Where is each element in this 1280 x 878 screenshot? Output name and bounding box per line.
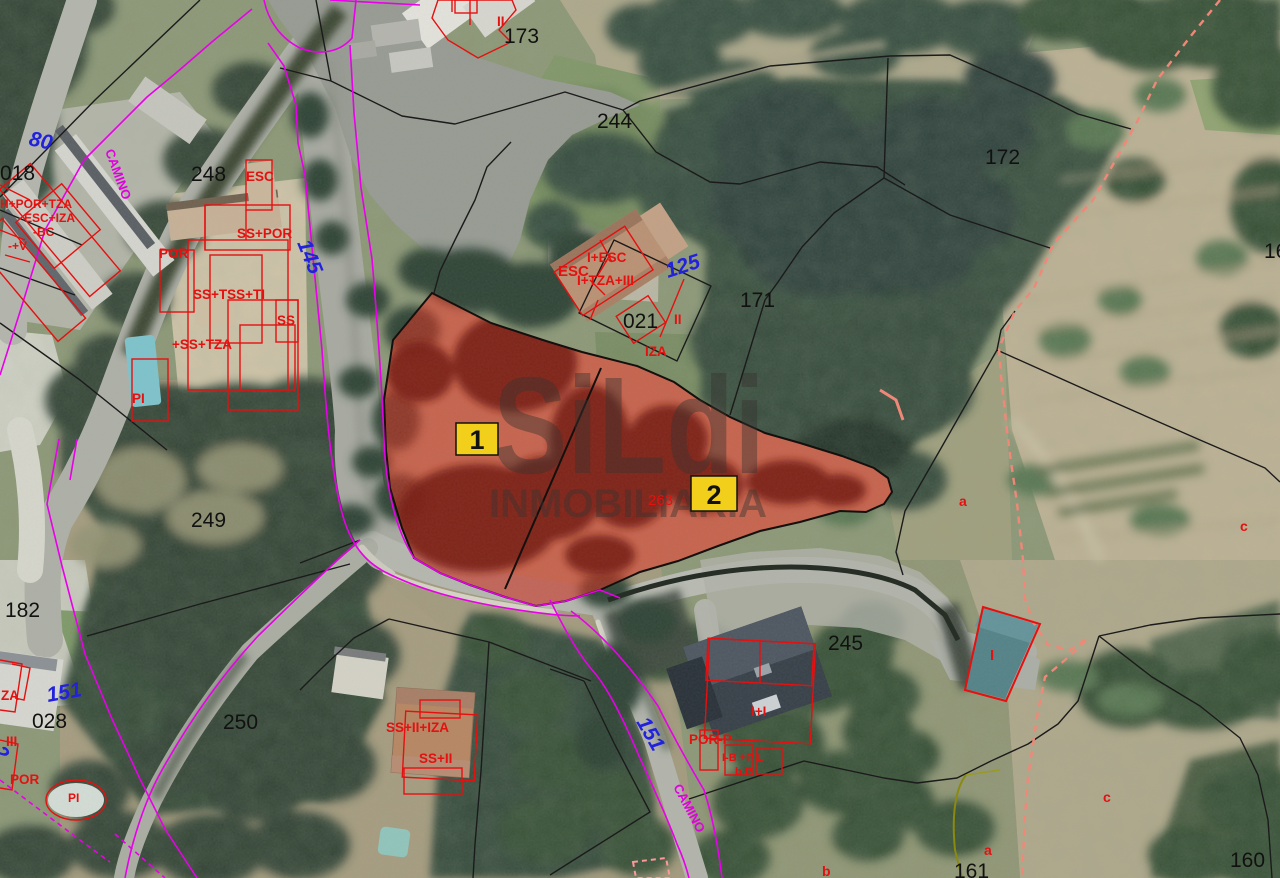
svg-text:1: 1 [469,425,484,455]
svg-text:245: 245 [828,632,863,655]
svg-text:SS+TSS+TI: SS+TSS+TI [193,287,265,302]
svg-text:161: 161 [954,860,989,878]
svg-text:173: 173 [504,25,539,48]
svg-text:182: 182 [5,599,40,622]
svg-text:b: b [822,863,831,878]
svg-text:I: I [990,647,994,664]
svg-text:248: 248 [191,163,226,186]
svg-text:16: 16 [1264,240,1280,263]
svg-text:249: 249 [191,509,226,532]
svg-text:244: 244 [597,110,632,133]
svg-text:SS+II: SS+II [419,751,452,766]
svg-text:a: a [984,842,992,858]
svg-text:SS: SS [277,313,295,328]
svg-text:c: c [1103,789,1111,805]
svg-text:171: 171 [740,289,775,312]
svg-text:I+TZA+III: I+TZA+III [577,273,634,288]
svg-text:263: 263 [648,492,673,509]
svg-text:160: 160 [1230,849,1265,872]
svg-text:250: 250 [223,711,258,734]
svg-text:c: c [1240,518,1248,534]
svg-text:IZA: IZA [645,344,667,359]
svg-text:-BC: -BC [33,225,55,239]
svg-text:POR: POR [159,246,189,261]
svg-text:2: 2 [706,480,721,510]
svg-text:b P: b P [735,766,752,778]
svg-text:I+ESC: I+ESC [587,250,627,265]
svg-text:SS+POR: SS+POR [237,226,292,241]
svg-text:+SS+TZA: +SS+TZA [172,337,232,352]
svg-text:SS+II+IZA: SS+II+IZA [386,720,449,735]
svg-text:PI: PI [132,391,145,406]
svg-text:H+POR+TZA: H+POR+TZA [0,197,72,211]
svg-text:ESC+IZA: ESC+IZA [24,211,75,225]
svg-text:POR-P: POR-P [689,732,732,747]
svg-text:021: 021 [623,310,658,333]
svg-text:-+V: -+V [8,239,27,253]
svg-text:ZA: ZA [1,688,19,703]
svg-text:018: 018 [0,162,35,185]
svg-text:028: 028 [32,710,67,733]
svg-text:I-B +P L: I-B +P L [722,752,763,764]
svg-text:a: a [959,493,967,509]
svg-text:PI: PI [68,791,79,805]
svg-text:II: II [674,312,682,327]
svg-text:172: 172 [985,146,1020,169]
svg-text:I+I: I+I [751,704,766,719]
svg-text:POR: POR [10,772,40,787]
svg-text:ESC: ESC [246,169,274,184]
